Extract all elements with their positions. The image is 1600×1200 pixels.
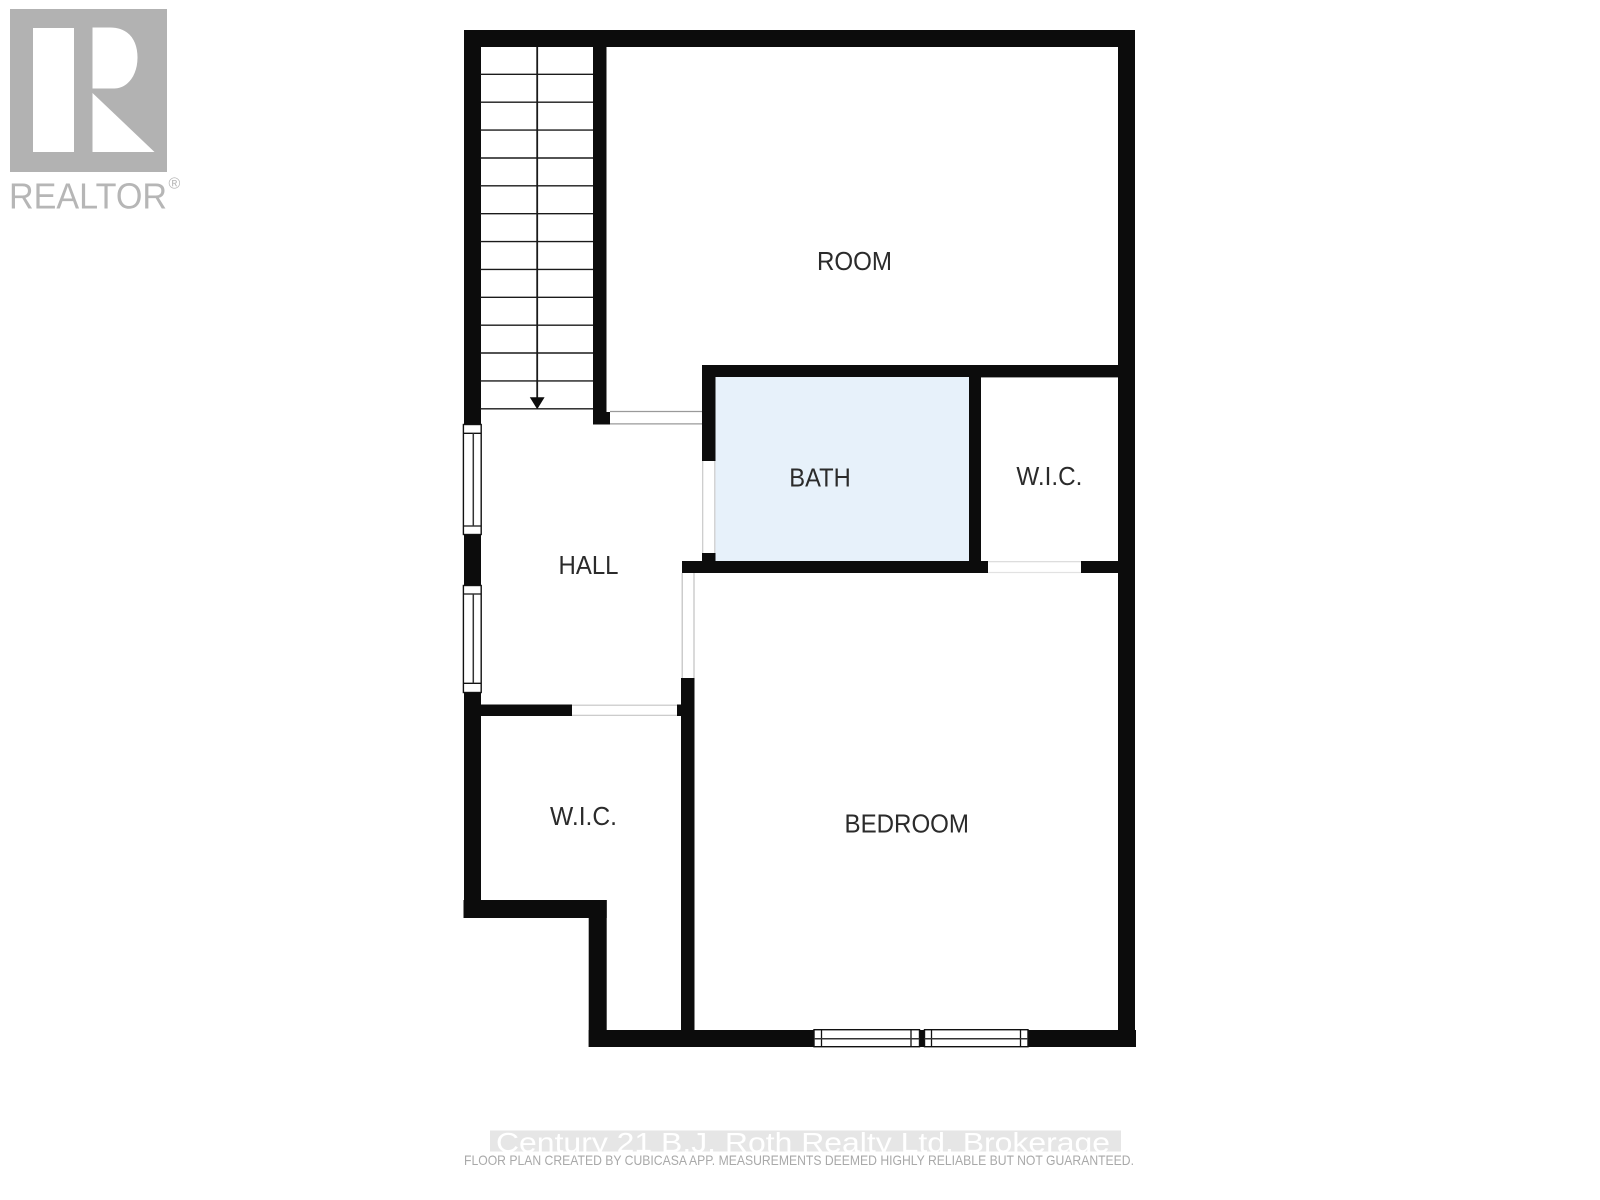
svg-text:ROOM: ROOM (817, 246, 892, 276)
svg-text:REALTOR: REALTOR (9, 176, 167, 217)
svg-text:FLOOR PLAN CREATED BY CUBICASA: FLOOR PLAN CREATED BY CUBICASA APP. MEAS… (464, 1153, 1134, 1168)
svg-text:®: ® (169, 176, 181, 193)
svg-text:BATH: BATH (789, 462, 851, 492)
svg-text:HALL: HALL (559, 550, 619, 580)
svg-text:BEDROOM: BEDROOM (845, 809, 970, 839)
svg-text:W.I.C.: W.I.C. (550, 801, 617, 831)
svg-text:W.I.C.: W.I.C. (1016, 461, 1082, 491)
